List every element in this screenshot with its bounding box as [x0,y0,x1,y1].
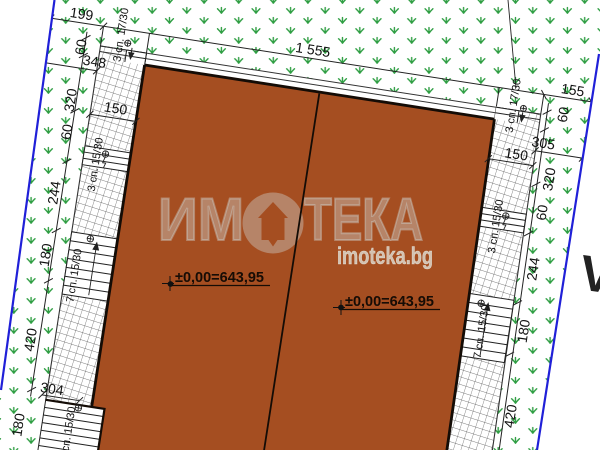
svg-text:60: 60 [554,105,572,123]
svg-text:±0,00=643,95: ±0,00=643,95 [175,270,264,286]
svg-text:imoteka.bg: imoteka.bg [337,243,433,270]
svg-text:±0,00=643,95: ±0,00=643,95 [345,294,434,310]
svg-text:60: 60 [57,123,75,141]
svg-text:ИМ: ИМ [158,186,244,253]
svg-text:60: 60 [533,203,551,221]
